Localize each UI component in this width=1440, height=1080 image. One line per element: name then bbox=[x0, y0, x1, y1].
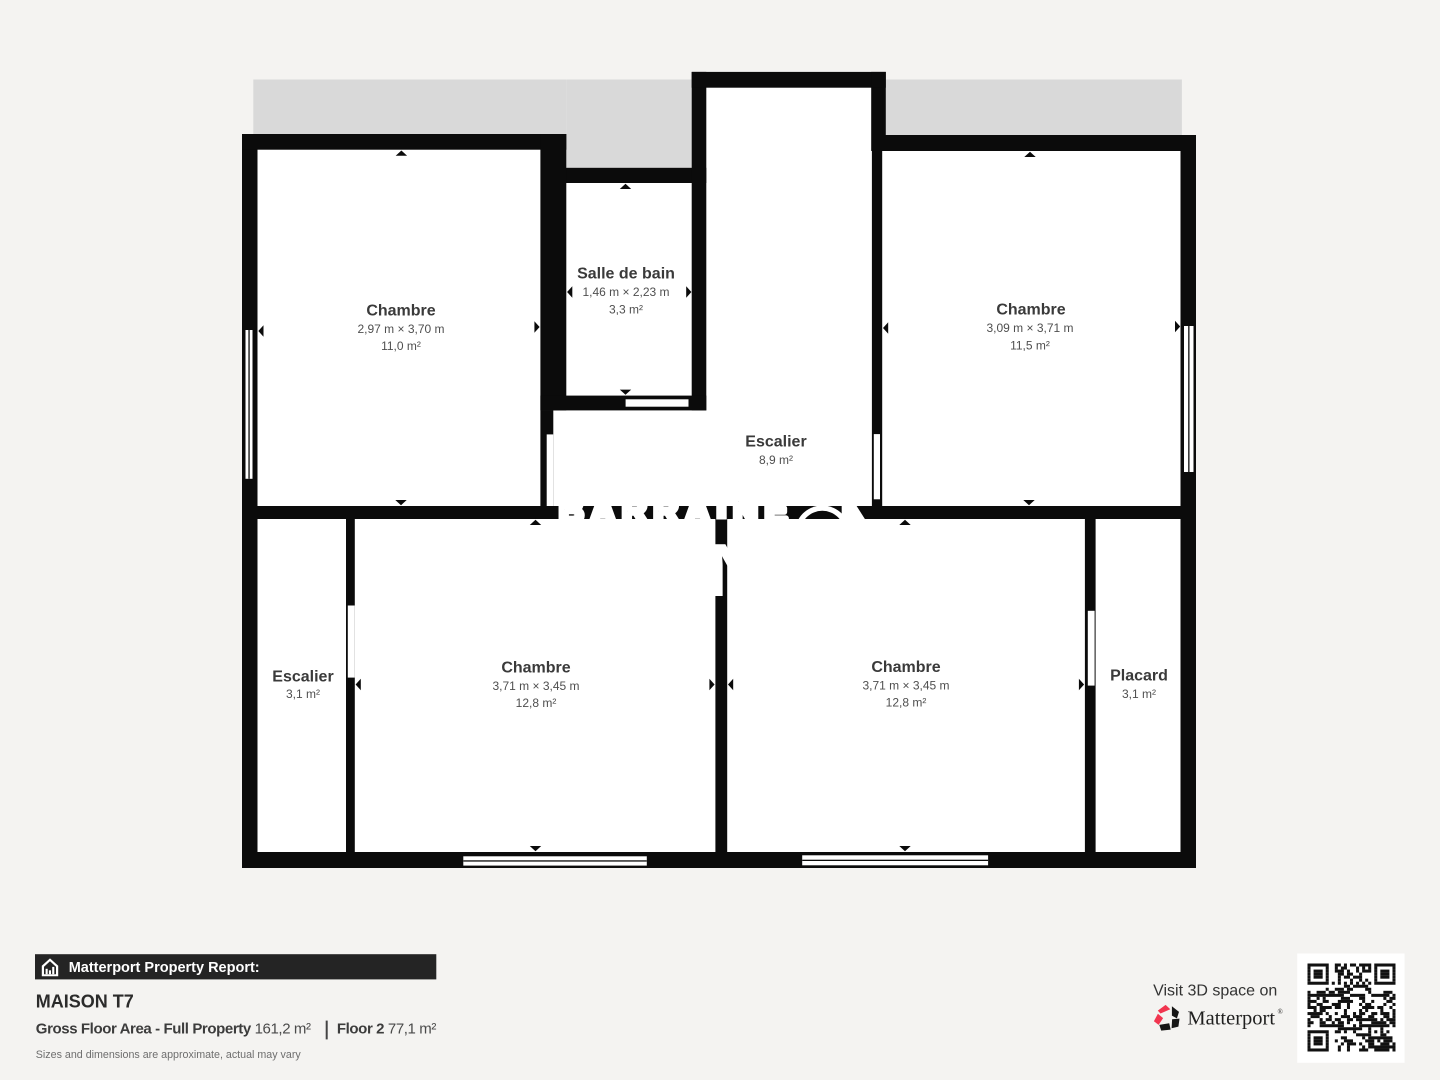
svg-text:8,9 m²: 8,9 m² bbox=[759, 453, 793, 467]
svg-text:3,09 m × 3,71 m: 3,09 m × 3,71 m bbox=[986, 321, 1073, 335]
svg-text:1,46 m × 2,23 m: 1,46 m × 2,23 m bbox=[582, 285, 669, 299]
svg-text:3,1 m²: 3,1 m² bbox=[286, 687, 320, 701]
svg-text:Chambre: Chambre bbox=[871, 659, 940, 676]
svg-text:3,3 m²: 3,3 m² bbox=[609, 302, 643, 316]
svg-text:Matterport: Matterport bbox=[1187, 1008, 1275, 1030]
svg-text:Gross Floor Area - Full Proper: Gross Floor Area - Full Property 161,2 m… bbox=[36, 1021, 311, 1038]
svg-text:Placard: Placard bbox=[1110, 668, 1168, 685]
svg-text:Matterport Property Report:: Matterport Property Report: bbox=[69, 960, 260, 976]
svg-text:11,5 m²: 11,5 m² bbox=[1010, 338, 1050, 352]
svg-text:Floor 2 77,1 m²: Floor 2 77,1 m² bbox=[337, 1021, 436, 1038]
svg-text:N: N bbox=[708, 528, 762, 612]
svg-text:Escalier: Escalier bbox=[745, 434, 806, 451]
svg-text:12,8 m²: 12,8 m² bbox=[516, 696, 557, 710]
svg-text:Chambre: Chambre bbox=[366, 303, 435, 320]
svg-text:®: ® bbox=[1278, 1008, 1284, 1016]
svg-text:Chambre: Chambre bbox=[501, 660, 570, 677]
svg-text:2,97 m × 3,70 m: 2,97 m × 3,70 m bbox=[357, 322, 444, 336]
svg-text:3,71 m × 3,45 m: 3,71 m × 3,45 m bbox=[862, 678, 949, 692]
svg-text:Sizes and dimensions are appro: Sizes and dimensions are approximate, ac… bbox=[36, 1049, 302, 1061]
svg-text:Visit 3D space on: Visit 3D space on bbox=[1153, 983, 1277, 1000]
svg-text:3,71 m × 3,45 m: 3,71 m × 3,45 m bbox=[492, 679, 579, 693]
svg-text:Salle de bain: Salle de bain bbox=[577, 266, 675, 283]
svg-text:MAISON T7: MAISON T7 bbox=[36, 992, 134, 1012]
svg-text:Escalier: Escalier bbox=[272, 669, 333, 686]
svg-text:Chambre: Chambre bbox=[996, 302, 1065, 319]
svg-text:12,8 m²: 12,8 m² bbox=[886, 695, 927, 709]
svg-text:3,1 m²: 3,1 m² bbox=[1122, 687, 1156, 701]
svg-text:11,0 m²: 11,0 m² bbox=[381, 339, 421, 353]
